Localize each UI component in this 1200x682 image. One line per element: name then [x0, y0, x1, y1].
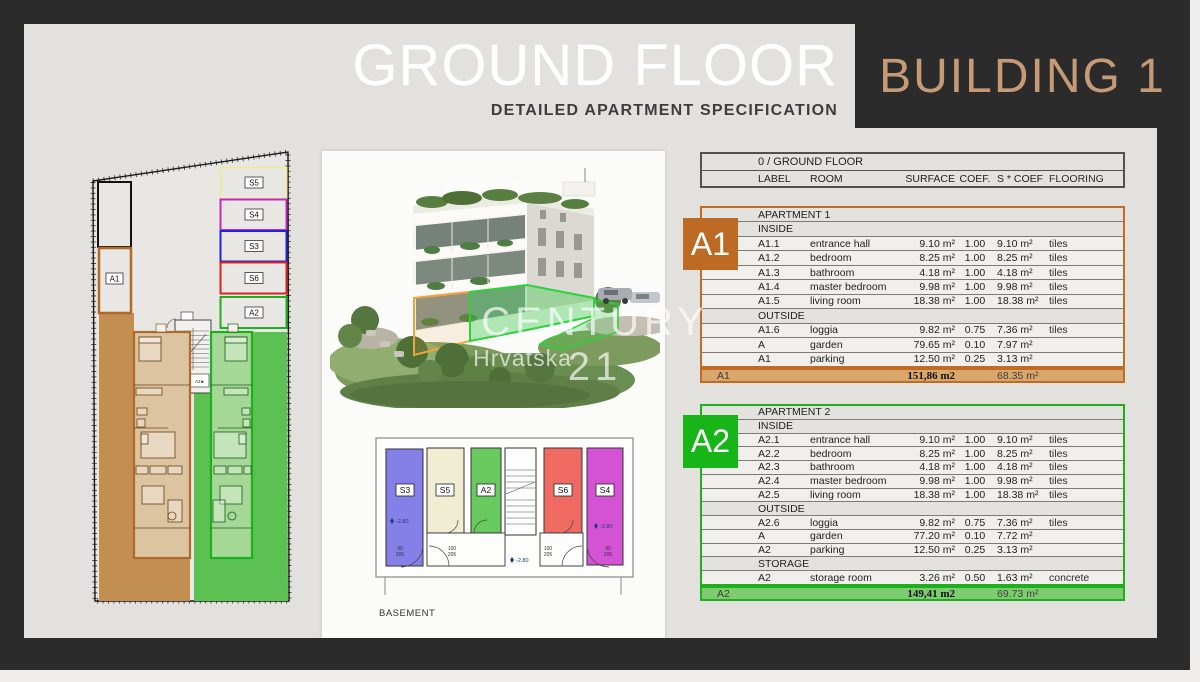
dim-205: 205 [396, 552, 405, 558]
spec-row: Agarden79.65 m²0.107.97 m² [702, 338, 1123, 352]
basement-s6-label: S6 [558, 485, 569, 495]
basement-stairs [505, 448, 536, 535]
cell-cs: 77.20 m² [882, 530, 955, 542]
cell-cl: A2.5 [758, 489, 810, 501]
cell-cf: tiles [1047, 461, 1123, 473]
spec-row: A1parking12.50 m²0.253.13 m² [702, 353, 1123, 366]
cell-cr: bathroom [810, 267, 882, 279]
building-title: BUILDING 1 [879, 49, 1166, 104]
cell-cc: 1.00 [955, 448, 995, 460]
elev-corridor: -2.80 [516, 558, 529, 564]
cell-cr: loggia [810, 324, 882, 336]
cell-cc: 0.75 [955, 324, 995, 336]
cell-cc: 0.25 [955, 353, 995, 365]
section-row: STORAGE [702, 557, 1123, 571]
basement-caption: BASEMENT [379, 608, 435, 619]
cell-cc: 1.00 [955, 252, 995, 264]
section-row: INSIDE [702, 222, 1123, 236]
cell-cl: A [758, 530, 810, 542]
cell-cs: 12.50 m² [882, 544, 955, 556]
total-coef: 68.35 m² [995, 370, 1047, 382]
cell-cr: entrance hall [810, 434, 882, 446]
cell-cx: 9.98 m² [995, 281, 1047, 293]
cell-cs: 3.26 m² [882, 572, 955, 584]
a2-label: A2 [249, 309, 259, 318]
spec-row: A1.6loggia9.82 m²0.757.36 m²tiles [702, 324, 1123, 338]
cell-cc: 0.10 [955, 530, 995, 542]
cell-cr: living room [810, 489, 882, 501]
cell-cx: 3.13 m² [995, 353, 1047, 365]
col-label: LABEL [758, 173, 810, 185]
spec-header-table: 0 / GROUND FLOOR LABEL ROOM SURFACE COEF… [700, 152, 1125, 188]
cell-cr: bathroom [810, 461, 882, 473]
dim-205d: 205 [604, 552, 613, 558]
dim-205c: 205 [544, 552, 553, 558]
cell-cr: loggia [810, 517, 882, 529]
cell-cf: tiles [1047, 281, 1123, 293]
cell-cf: tiles [1047, 475, 1123, 487]
cell-cc: 0.50 [955, 572, 995, 584]
cell-cc: 1.00 [955, 461, 995, 473]
basement-a2-label: A2 [481, 485, 492, 495]
spec-row: A2.6loggia9.82 m²0.757.36 m²tiles [702, 516, 1123, 530]
apartment-a1-badge: A1 [683, 218, 738, 270]
building-title-block: BUILDING 1 [855, 24, 1190, 128]
apartment-1-table: APARTMENT 1INSIDEA1.1entrance hall9.10 m… [700, 206, 1125, 368]
cell-cr: master bedroom [810, 281, 882, 293]
cell-cr: parking [810, 353, 882, 365]
apartment-title-row: APARTMENT 1 [702, 208, 1123, 222]
cell-cr: parking [810, 544, 882, 556]
spec-row: A1.5living room18.38 m²1.0018.38 m²tiles [702, 295, 1123, 309]
floor-title: 0 / GROUND FLOOR [702, 154, 1123, 171]
a1-plot-label: A1 [110, 275, 120, 284]
spec-row: A2.4master bedroom9.98 m²1.009.98 m²tile… [702, 475, 1123, 489]
cell-cl: A2.3 [758, 461, 810, 473]
cell-cl: A2.1 [758, 434, 810, 446]
section-row: INSIDE [702, 420, 1123, 434]
cell-cf: tiles [1047, 267, 1123, 279]
cell-cl: A2.2 [758, 448, 810, 460]
cell-cf: tiles [1047, 324, 1123, 336]
cell-cx: 7.36 m² [995, 324, 1047, 336]
s6-label: S6 [249, 274, 259, 283]
cell-cc: 1.00 [955, 281, 995, 293]
cell-cx: 7.97 m² [995, 339, 1047, 351]
cell-cx: 18.38 m² [995, 295, 1047, 307]
s5-label: S5 [249, 179, 259, 188]
watermark-country: Hrvatska [455, 345, 590, 372]
cell-cs: 9.10 m² [882, 238, 955, 250]
cell-cc: 0.75 [955, 517, 995, 529]
total-surface: 151,86 m2 [882, 370, 955, 382]
cell-cc: 1.00 [955, 267, 995, 279]
section-row: OUTSIDE [702, 309, 1123, 323]
cell-cs: 8.25 m² [882, 448, 955, 460]
col-flooring: FLOORING [1047, 173, 1123, 185]
cell-cs: 9.10 m² [882, 434, 955, 446]
storage-boxes: S5 S4 S3 S6 A2 [221, 168, 287, 329]
apartment-2-table: APARTMENT 2INSIDEA2.1entrance hall9.10 m… [700, 404, 1125, 586]
cell-cl: A1.1 [758, 238, 810, 250]
apartment-a2-badge: A2 [683, 415, 738, 468]
spec-row: A1.2bedroom8.25 m²1.008.25 m²tiles [702, 251, 1123, 265]
cell-cr: master bedroom [810, 475, 882, 487]
cell-cs: 9.98 m² [882, 475, 955, 487]
apartment-title-row: APARTMENT 2 [702, 406, 1123, 420]
total-label: A2 [717, 588, 758, 600]
s4-label: S4 [249, 211, 259, 220]
spec-row: A1.4master bedroom9.98 m²1.009.98 m²tile… [702, 280, 1123, 294]
cell-cr: living room [810, 295, 882, 307]
spec-row: A2.1entrance hall9.10 m²1.009.10 m²tiles [702, 434, 1123, 448]
cell-cl: A [758, 339, 810, 351]
cell-cl: A1.4 [758, 281, 810, 293]
apartment-a1-unit [134, 324, 190, 558]
cell-cs: 18.38 m² [882, 295, 955, 307]
cell-cs: 18.38 m² [882, 489, 955, 501]
spec-row: A2.3bathroom4.18 m²1.004.18 m²tiles [702, 461, 1123, 475]
spec-row: Agarden77.20 m²0.107.72 m² [702, 530, 1123, 544]
spec-row: A1.1entrance hall9.10 m²1.009.10 m²tiles [702, 237, 1123, 251]
cell-cc: 1.00 [955, 475, 995, 487]
cell-cx: 4.18 m² [995, 461, 1047, 473]
room-s3 [386, 449, 423, 566]
cell-cs: 79.65 m² [882, 339, 955, 351]
cell-cl: A2.6 [758, 517, 810, 529]
cell-cr: storage room [810, 572, 882, 584]
column-headers: LABEL ROOM SURFACE COEF. S * COEF FLOORI… [702, 171, 1123, 187]
cell-cl: A1.6 [758, 324, 810, 336]
stair-a2-label: A2► [195, 379, 205, 384]
basement-s5-label: S5 [440, 485, 451, 495]
cell-cf: tiles [1047, 238, 1123, 250]
cell-cr: bedroom [810, 252, 882, 264]
total-coef: 69.73 m² [995, 588, 1047, 600]
total-surface: 149,41 m2 [882, 588, 955, 600]
spec-row: A2parking12.50 m²0.253.13 m² [702, 544, 1123, 558]
spec-row: A2storage room3.26 m²0.501.63 m²concrete [702, 571, 1123, 584]
cell-cr: bedroom [810, 448, 882, 460]
page-subtitle: DETAILED APARTMENT SPECIFICATION [300, 102, 838, 120]
cell-cx: 7.36 m² [995, 517, 1047, 529]
col-room: ROOM [810, 173, 882, 185]
cell-cr: garden [810, 339, 882, 351]
apartment-2-total: A2 149,41 m2 69.73 m² [700, 586, 1125, 601]
cell-cs: 9.98 m² [882, 281, 955, 293]
page-title: GROUND FLOOR [300, 34, 838, 98]
cell-cc: 1.00 [955, 434, 995, 446]
cell-cs: 4.18 m² [882, 461, 955, 473]
cell-cx: 9.98 m² [995, 475, 1047, 487]
cell-cx: 9.10 m² [995, 434, 1047, 446]
cell-cl: A1.3 [758, 267, 810, 279]
basement-s3-label: S3 [400, 485, 411, 495]
cell-cs: 4.18 m² [882, 267, 955, 279]
header: GROUND FLOOR DETAILED APARTMENT SPECIFIC… [300, 34, 838, 120]
slide: GROUND FLOOR DETAILED APARTMENT SPECIFIC… [0, 0, 1200, 682]
parking-box-black [98, 182, 131, 247]
spec-row: A1.3bathroom4.18 m²1.004.18 m²tiles [702, 266, 1123, 280]
basement-plan: 90 205 100 205 100 205 90 205 -2.80 -2.8… [368, 432, 643, 627]
cell-cl: A1.2 [758, 252, 810, 264]
cell-cf: tiles [1047, 252, 1123, 264]
cell-cc: 1.00 [955, 295, 995, 307]
cell-cf: tiles [1047, 517, 1123, 529]
cell-cs: 9.82 m² [882, 324, 955, 336]
cell-cl: A2.4 [758, 475, 810, 487]
cell-cf: concrete [1047, 572, 1123, 584]
cell-cx: 4.18 m² [995, 267, 1047, 279]
cell-cl: A2 [758, 572, 810, 584]
cell-cs: 8.25 m² [882, 252, 955, 264]
elev-s4: -2.80 [600, 524, 613, 530]
cell-cr: entrance hall [810, 238, 882, 250]
spec-row: A2.5living room18.38 m²1.0018.38 m²tiles [702, 489, 1123, 503]
apartment-1-total: A1 151,86 m2 68.35 m² [700, 368, 1125, 383]
cell-cl: A1.5 [758, 295, 810, 307]
cell-cx: 7.72 m² [995, 530, 1047, 542]
elev-s3: -2.80 [396, 519, 409, 525]
cell-cs: 9.82 m² [882, 517, 955, 529]
cell-cx: 1.63 m² [995, 572, 1047, 584]
cell-cs: 12.50 m² [882, 353, 955, 365]
dim-205b: 205 [448, 552, 457, 558]
site-plan: A1 S5 S4 S3 S6 A2 [80, 145, 295, 610]
cell-cf: tiles [1047, 448, 1123, 460]
cell-cr: garden [810, 530, 882, 542]
section-row: OUTSIDE [702, 502, 1123, 516]
cell-cl: A1 [758, 353, 810, 365]
cell-cx: 9.10 m² [995, 238, 1047, 250]
cell-cf: tiles [1047, 489, 1123, 501]
basement-s4-label: S4 [600, 485, 611, 495]
cell-cx: 3.13 m² [995, 544, 1047, 556]
spec-row: A2.2bedroom8.25 m²1.008.25 m²tiles [702, 447, 1123, 461]
cell-cc: 0.10 [955, 339, 995, 351]
cell-cl: A2 [758, 544, 810, 556]
apartment-a2-unit [211, 324, 252, 558]
col-surface: SURFACE [882, 173, 955, 185]
cell-cc: 0.25 [955, 544, 995, 556]
cell-cf: tiles [1047, 434, 1123, 446]
cell-cc: 1.00 [955, 238, 995, 250]
col-scoef: S * COEF [995, 173, 1047, 185]
cell-cx: 8.25 m² [995, 252, 1047, 264]
cell-cx: 18.38 m² [995, 489, 1047, 501]
s3-label: S3 [249, 242, 259, 251]
cell-cx: 8.25 m² [995, 448, 1047, 460]
cell-cc: 1.00 [955, 489, 995, 501]
col-coef: COEF. [955, 173, 995, 185]
cell-cf: tiles [1047, 295, 1123, 307]
